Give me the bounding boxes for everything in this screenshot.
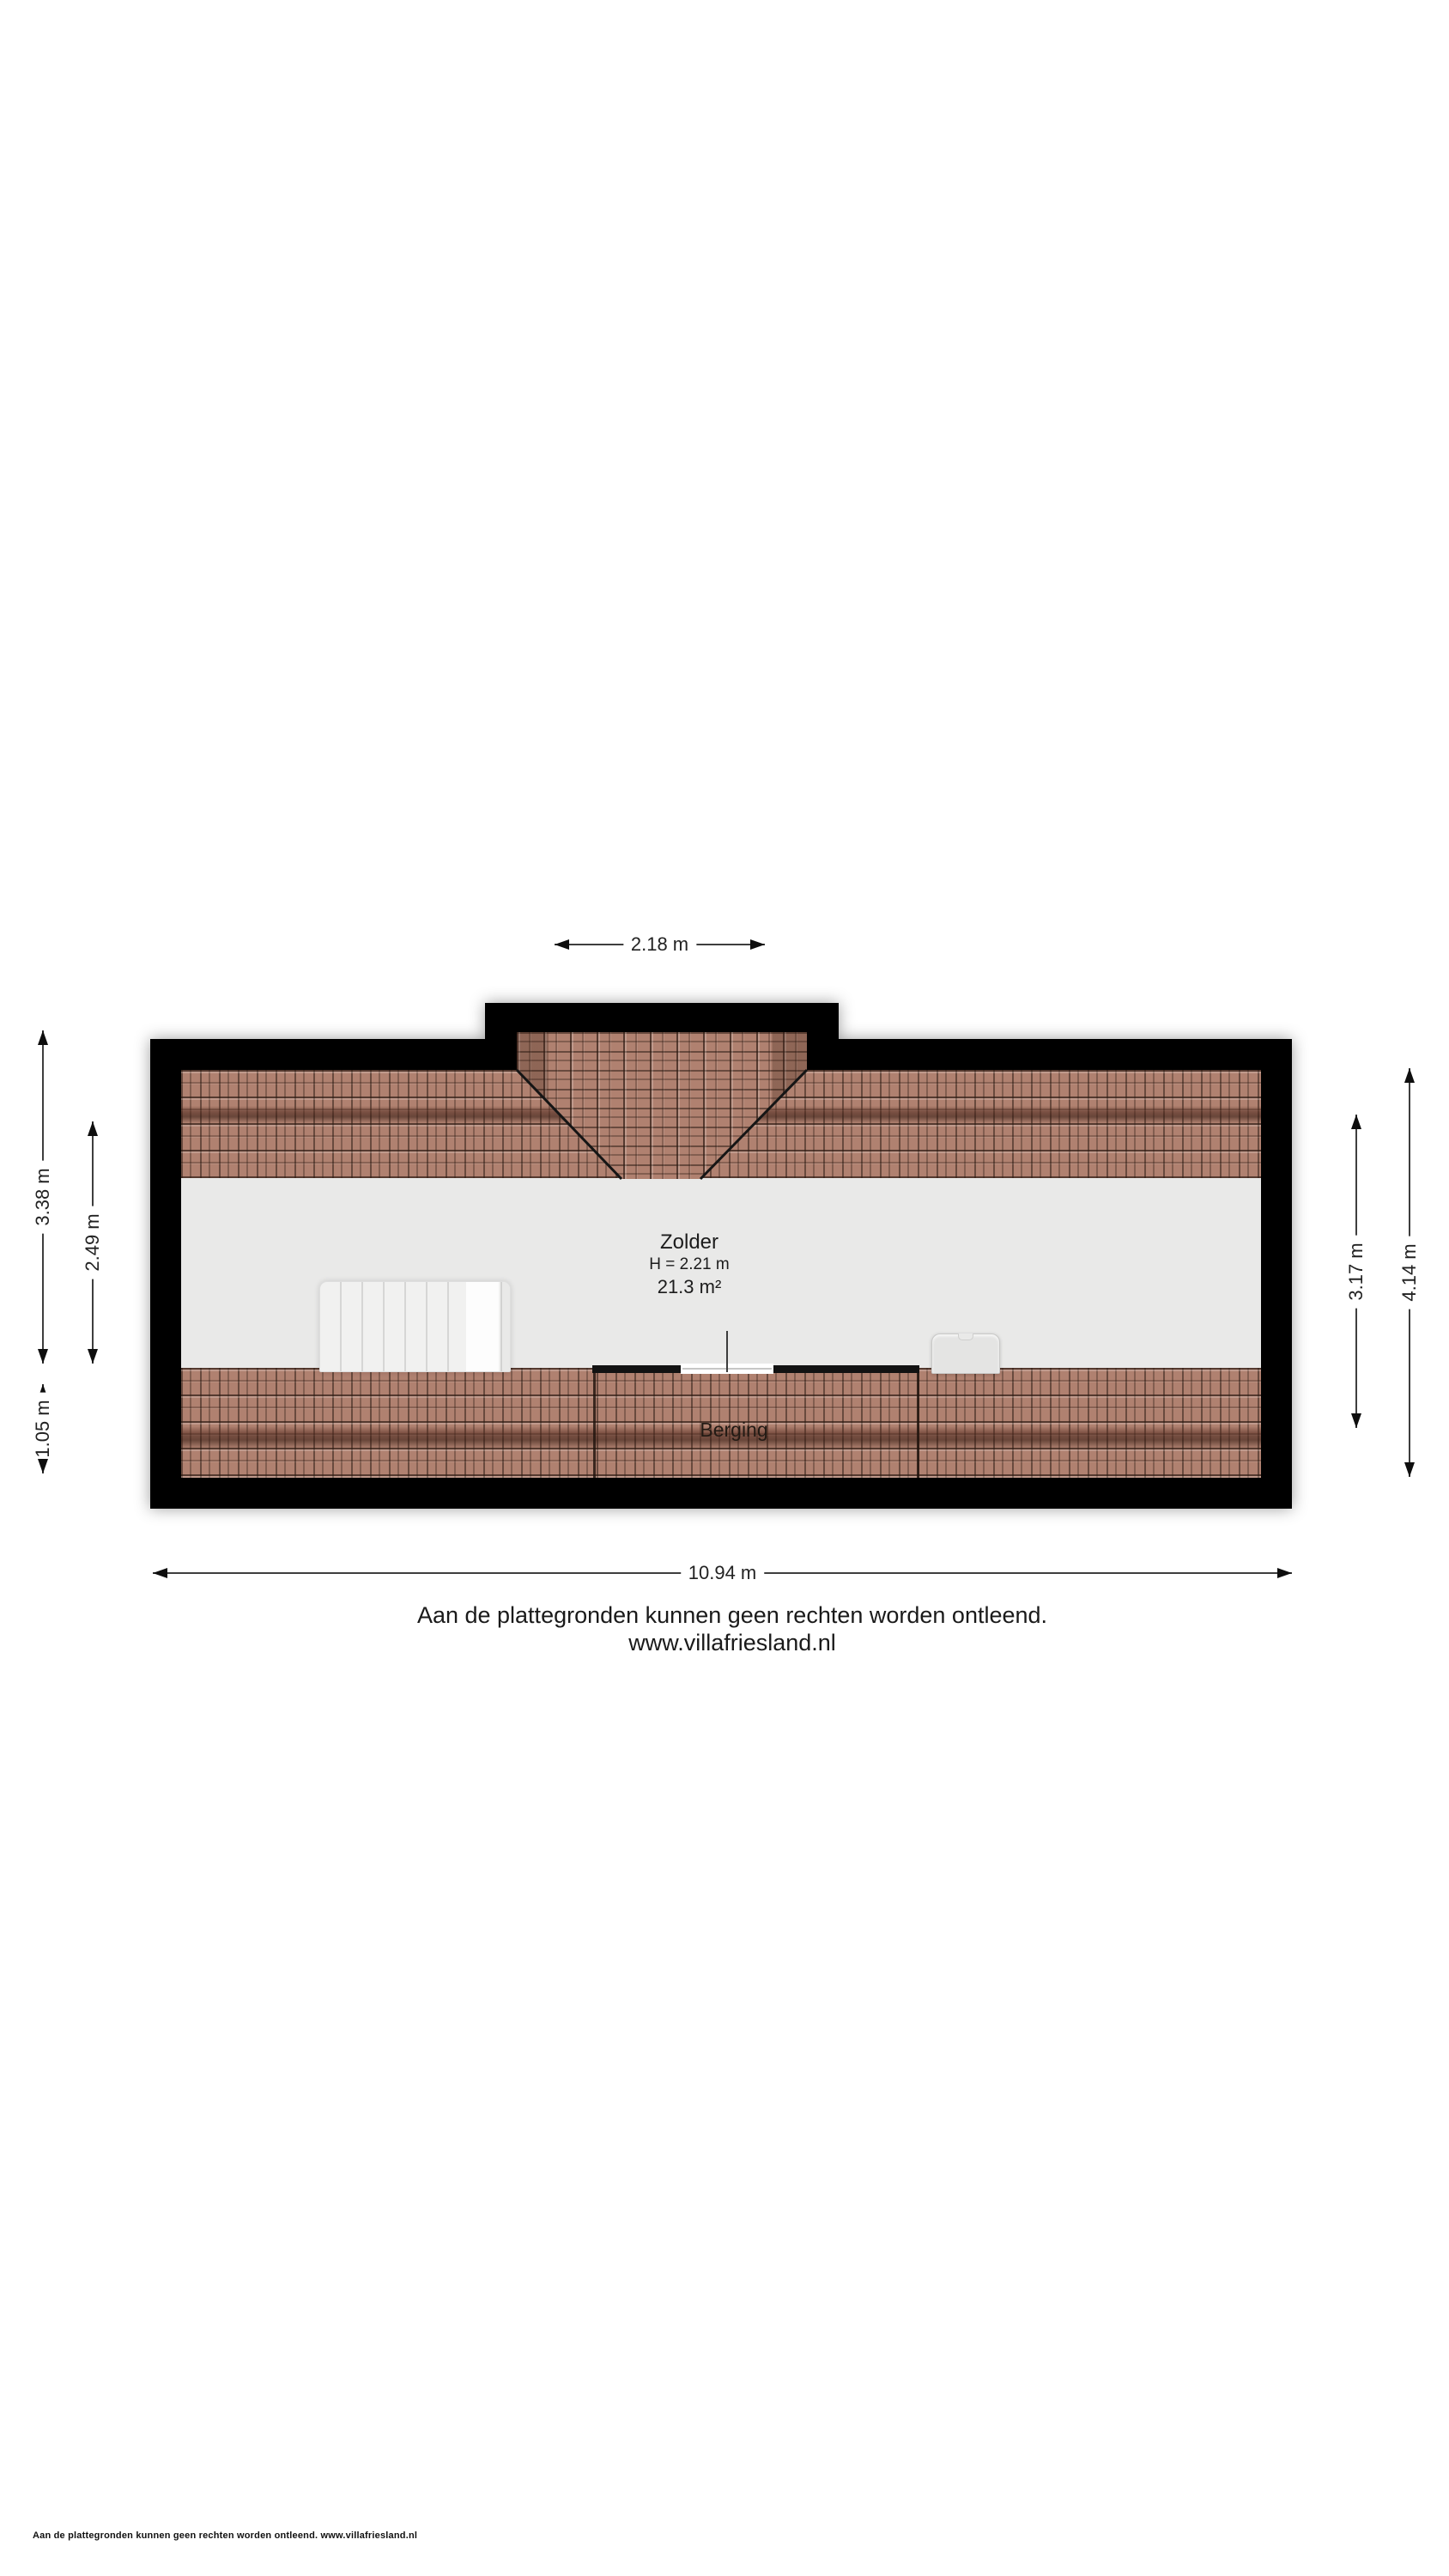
arrowhead-right-icon [750,939,765,950]
disclaimer-line-2: www.villafriesland.nl [217,1630,1247,1656]
disclaimer-line-1: Aan de plattegronden kunnen geen rechten… [217,1602,1247,1629]
dimension-left-outer: 3.38 m [42,1030,44,1364]
arrowhead-down-icon [88,1349,98,1364]
berging-label-block: Berging [635,1419,833,1442]
dimension-label: 2.18 m [623,933,696,957]
arrowhead-left-icon [555,939,569,950]
arrowhead-down-icon [38,1349,48,1364]
dimension-label: 3.38 m [31,1160,55,1233]
dimension-right-outer: 4.14 m [1409,1068,1410,1477]
zolder-room-name: Zolder [561,1230,818,1255]
floorplan-page: Zolder H = 2.21 m 21.3 m² Berging 2.18 m… [0,0,1449,2576]
stair-treads [320,1282,466,1371]
arrowhead-up-icon [1351,1115,1361,1129]
berging-side-wall-left [593,1373,596,1478]
berging-wall-left-segment [592,1365,681,1373]
dimension-dormer-width: 2.18 m [555,944,765,945]
page-footer-text: Aan de plattegronden kunnen geen rechten… [33,2530,417,2541]
boiler-notch [958,1334,973,1340]
dimension-left-inner: 2.49 m [92,1121,94,1364]
staircase [319,1281,511,1372]
arrowhead-up-icon [38,1030,48,1045]
dimension-right-inner: 3.17 m [1355,1115,1357,1428]
dimension-label: 4.14 m [1397,1236,1422,1309]
dimension-label: 3.17 m [1344,1235,1368,1308]
zolder-ceiling-height: H = 2.21 m [561,1255,818,1275]
berging-wall-right-segment [773,1365,919,1373]
arrowhead-down-icon [38,1459,48,1473]
arrowhead-left-icon [153,1568,167,1578]
dimension-label: 1.05 m [31,1392,55,1465]
arrowhead-up-icon [88,1121,98,1136]
arrowhead-down-icon [1351,1413,1361,1428]
berging-side-wall-right [917,1373,919,1478]
dimension-label: 10.94 m [681,1561,765,1585]
dormer-tiles-upper [517,1032,807,1070]
stair-landing [466,1282,499,1371]
boiler-unit [931,1334,1000,1374]
zolder-area: 21.3 m² [561,1275,818,1298]
berging-room-name: Berging [635,1419,833,1442]
dimension-left-lower: 1.05 m [42,1384,44,1473]
zolder-label-block: Zolder H = 2.21 m 21.3 m² [561,1230,818,1298]
dimension-total-width: 10.94 m [153,1572,1292,1574]
dimension-label: 2.49 m [81,1206,105,1279]
dormer-shading [517,1032,807,1070]
arrowhead-down-icon [1404,1462,1415,1477]
arrowhead-right-icon [1277,1568,1292,1578]
arrowhead-up-icon [1404,1068,1415,1083]
berging-door-leaf [726,1331,728,1372]
stair-edge [500,1282,510,1371]
